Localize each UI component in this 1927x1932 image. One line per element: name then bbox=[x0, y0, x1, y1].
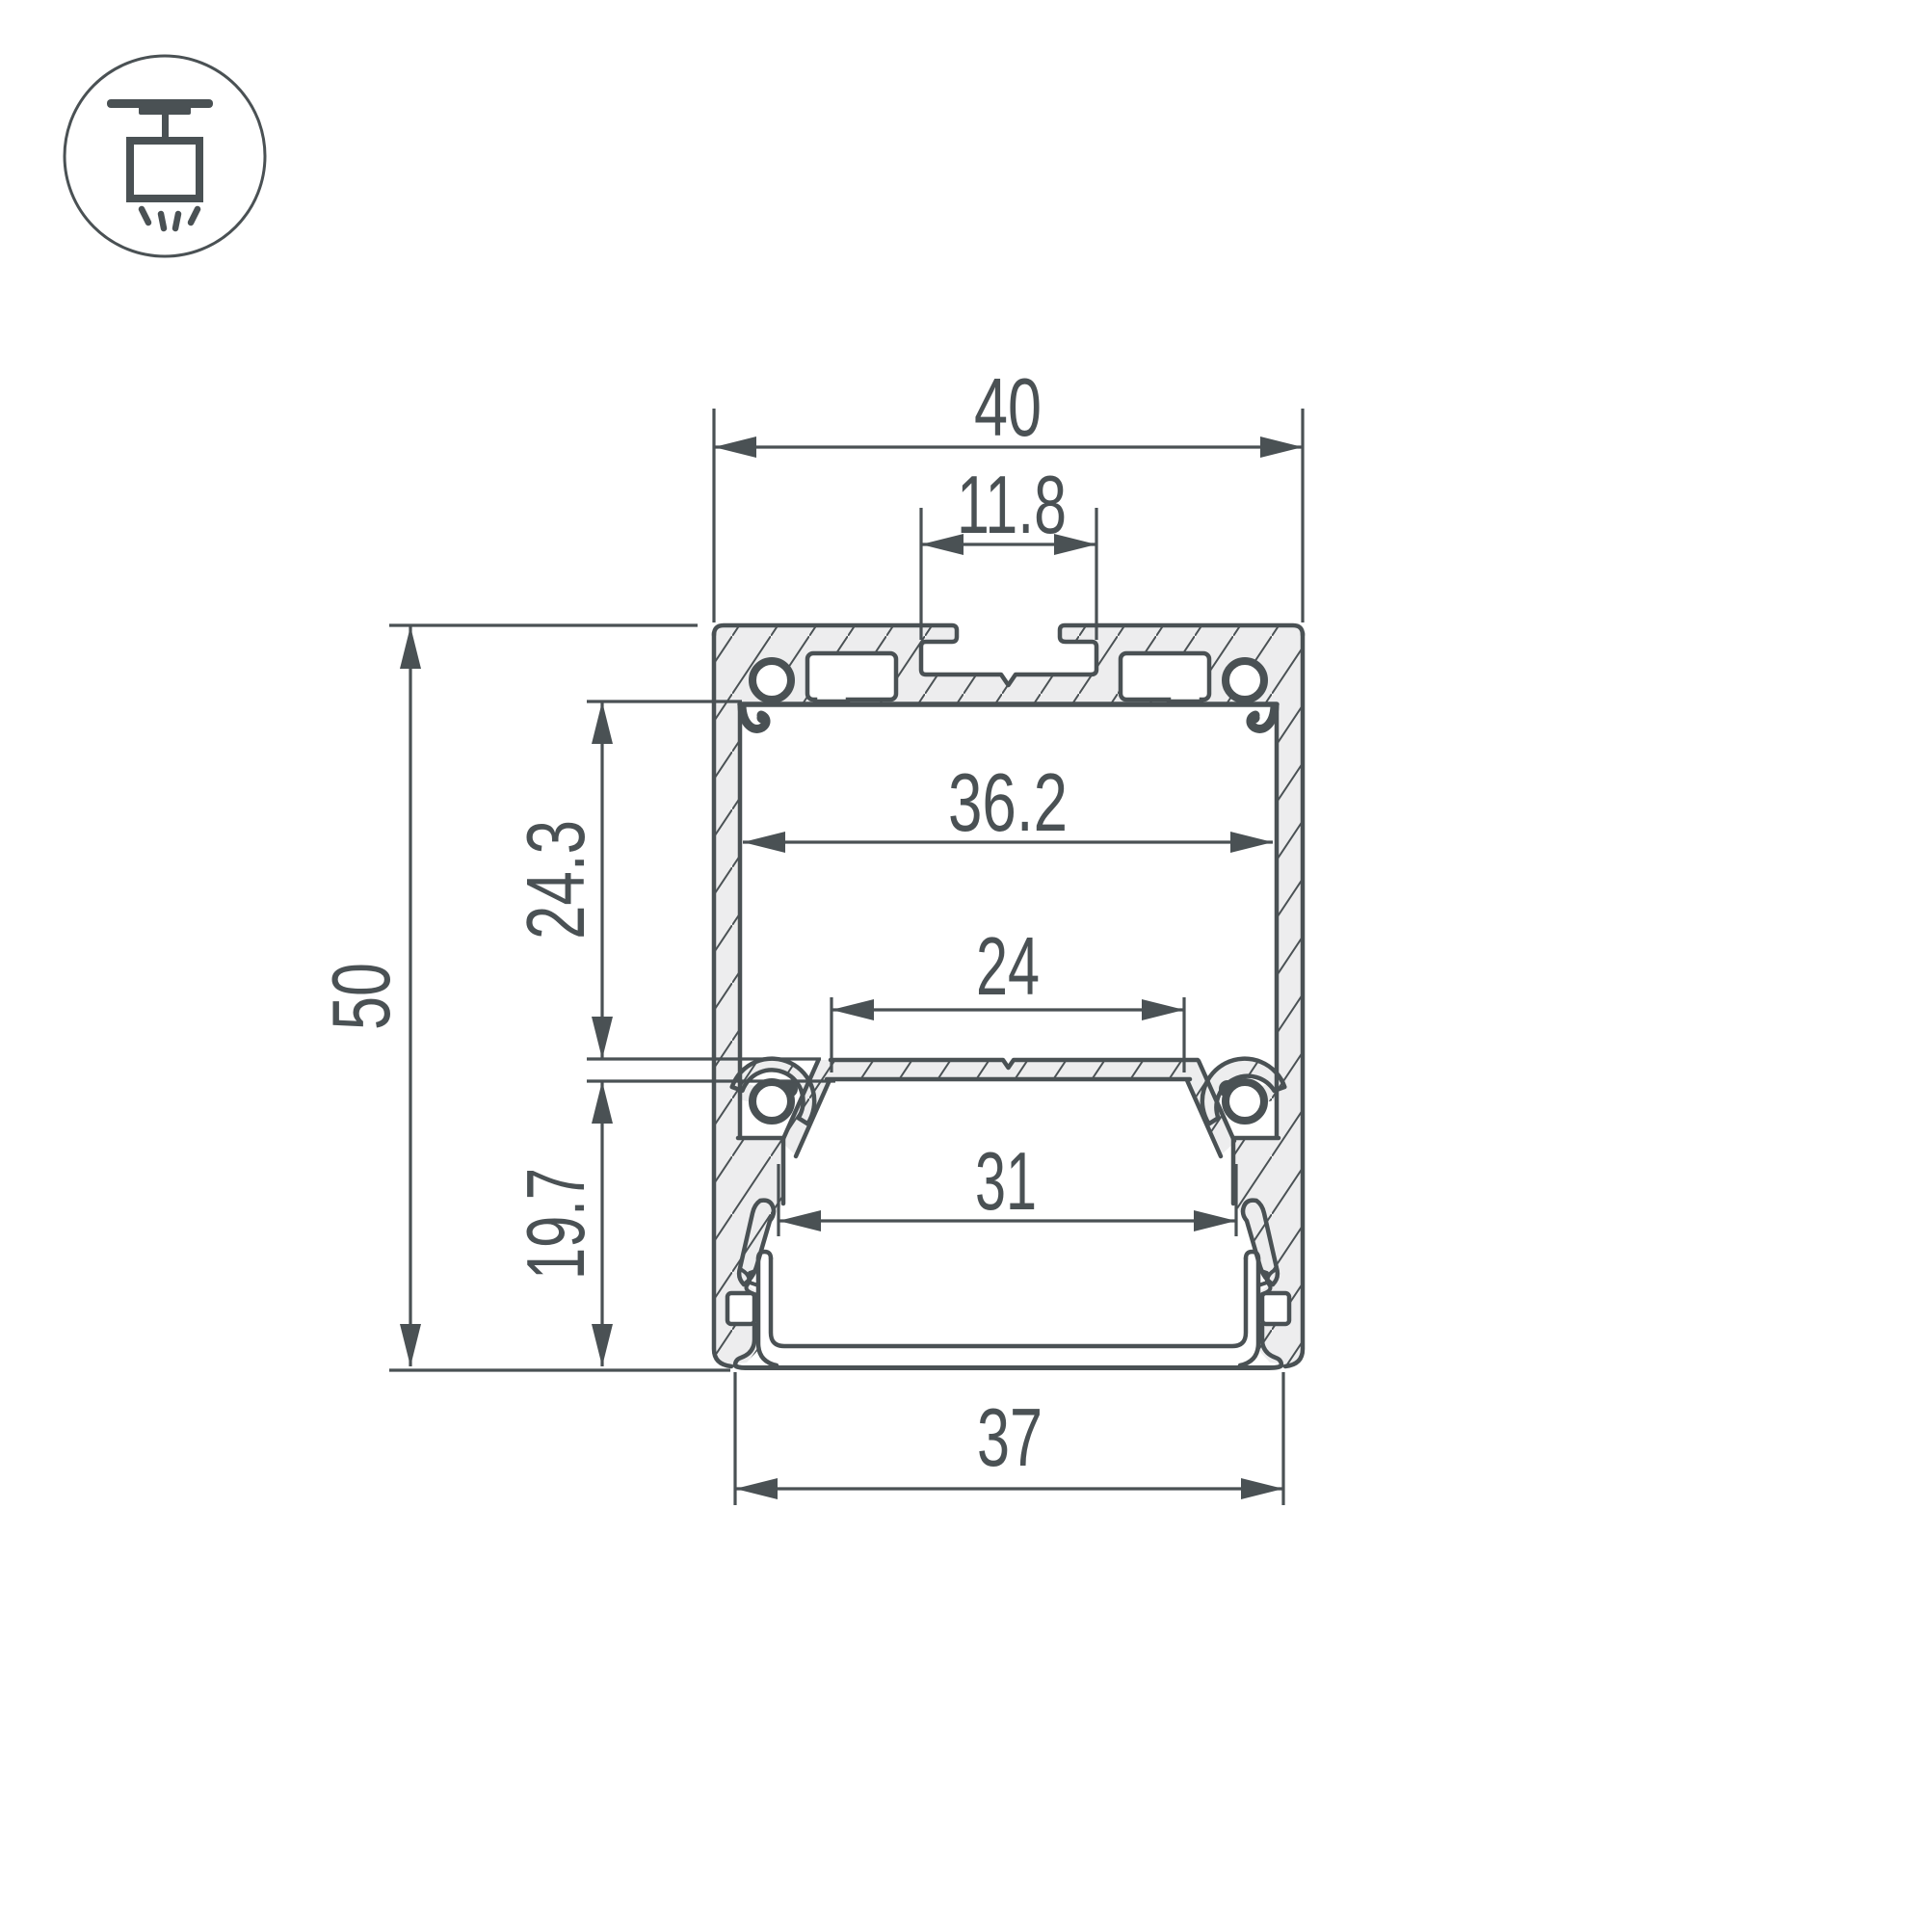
svg-text:37: 37 bbox=[977, 1392, 1043, 1484]
svg-text:19.7: 19.7 bbox=[511, 1168, 602, 1280]
svg-text:50: 50 bbox=[316, 963, 408, 1030]
svg-text:11.8: 11.8 bbox=[957, 460, 1067, 551]
svg-text:36.2: 36.2 bbox=[948, 757, 1068, 849]
svg-text:40: 40 bbox=[974, 362, 1042, 454]
svg-text:24.3: 24.3 bbox=[511, 820, 602, 940]
svg-text:24: 24 bbox=[976, 921, 1040, 1013]
svg-text:31: 31 bbox=[975, 1136, 1037, 1228]
